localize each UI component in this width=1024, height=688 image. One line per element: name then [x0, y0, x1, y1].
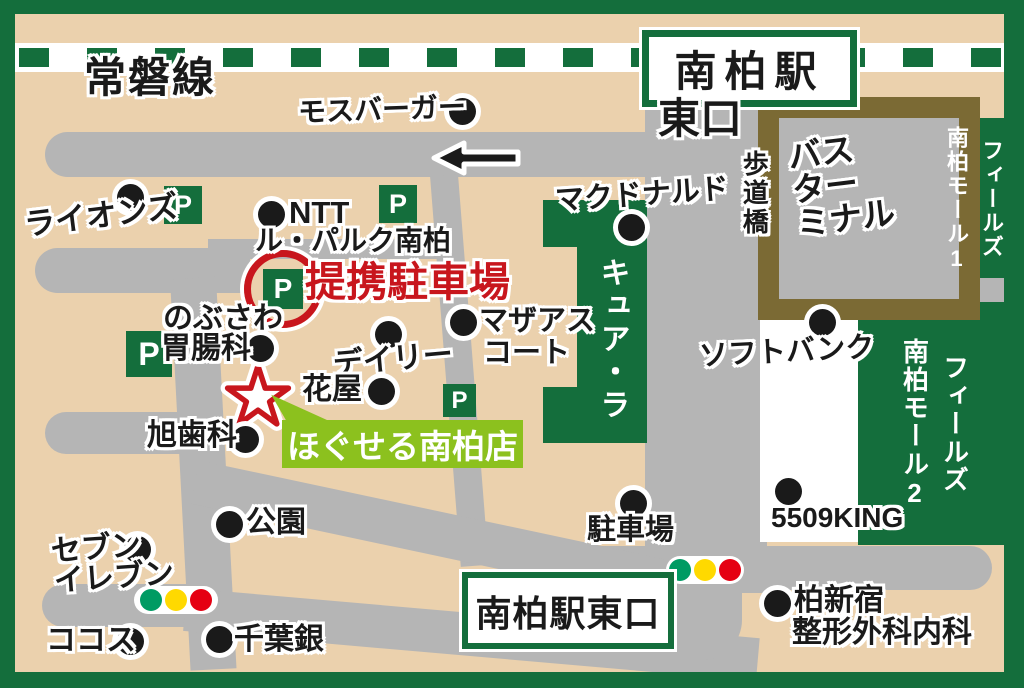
- label-joban-line: 常磐線: [84, 56, 216, 100]
- store-callout: ほぐせる南柏店: [282, 420, 523, 468]
- label-flower-shop: 花屋: [302, 374, 362, 406]
- label-asahi-dental: 旭歯科: [147, 420, 237, 452]
- fields-mall1-col1: フィールズ: [975, 139, 1007, 259]
- east-exit-sign-label: 南柏駅東口: [475, 585, 660, 637]
- poi-dot-softbank: [809, 309, 836, 336]
- poi-dot-mothers-court: [450, 309, 477, 336]
- poi-dot-kashiwa-clinic: [764, 590, 791, 617]
- store-name: ほぐせる南柏店: [287, 420, 518, 468]
- map-border-top: [0, 0, 1024, 14]
- label-mothers-court-1: マザアス: [479, 306, 595, 336]
- label-cure-la: キュア・ラ: [596, 257, 628, 422]
- fields-mall2-col2: 南柏モール2: [897, 338, 934, 510]
- store-access-map: 南柏駅 南柏駅東口 ほぐせる南柏店 P P P P P: [0, 0, 1024, 688]
- label-mothers-court-2: コート: [483, 338, 570, 368]
- poi-dot-ntt: [258, 201, 285, 228]
- parking-letter: P: [274, 273, 293, 305]
- east-exit-sign: 南柏駅東口: [462, 572, 674, 649]
- label-cocos: ココス: [46, 625, 136, 657]
- poi-dot-nobusawa: [247, 335, 274, 362]
- label-park: 公園: [246, 507, 306, 539]
- label-bus-terminal: バス ター ミナル: [786, 128, 897, 241]
- label-mos-burger: モスバーガー: [298, 92, 467, 127]
- poi-dot-chiba-bank: [206, 626, 233, 653]
- parking-letter: P: [389, 189, 407, 220]
- label-pedestrian-bridge: 歩道橋: [740, 150, 767, 237]
- building-cure-la-bottom: [543, 387, 647, 443]
- parking-letter: P: [138, 336, 159, 373]
- label-fields-mall2: フィールズ 南柏モール2: [880, 316, 990, 531]
- label-kashiwa-clinic-2: 整形外科内科: [792, 617, 972, 649]
- label-fields-mall1: フィールズ 南柏モール1: [943, 122, 1004, 276]
- label-5509king: 5509KING: [771, 503, 903, 532]
- fields-mall2-col1: フィールズ: [937, 354, 974, 494]
- label-partner-parking: 提携駐車場: [305, 261, 510, 304]
- label-nobusawa-2: 胃腸科: [161, 333, 251, 365]
- label-east-exit: 東口: [658, 97, 742, 141]
- map-border-right: [1004, 0, 1024, 688]
- parking-letter: P: [451, 387, 467, 415]
- traffic-light-icon-east: [666, 556, 744, 584]
- fields-mall1-col2: 南柏モール1: [940, 126, 972, 273]
- label-le-parc: ル・パルク南柏: [255, 226, 451, 255]
- poi-dot-parking-lot: [620, 490, 647, 517]
- poi-dot-flower-shop: [368, 378, 395, 405]
- map-border-bottom: [0, 672, 1024, 688]
- parking-icon-5: P: [443, 384, 476, 417]
- label-chiba-bank: 千葉銀: [234, 624, 324, 656]
- poi-dot-5509king: [775, 478, 802, 505]
- map-border-left: [0, 0, 15, 688]
- parking-icon-2: P: [379, 185, 417, 223]
- label-kashiwa-clinic-1: 柏新宿: [794, 585, 884, 617]
- label-lions: ライオンズ: [23, 191, 180, 242]
- label-parking-lot: 駐車場: [587, 515, 674, 545]
- poi-dot-mcdonalds: [618, 214, 645, 241]
- label-nobusawa-1: のぶさわ: [163, 303, 283, 335]
- station-sign-label: 南柏駅: [674, 38, 824, 99]
- poi-dot-park: [216, 511, 243, 538]
- direction-arrow-icon: [428, 138, 524, 178]
